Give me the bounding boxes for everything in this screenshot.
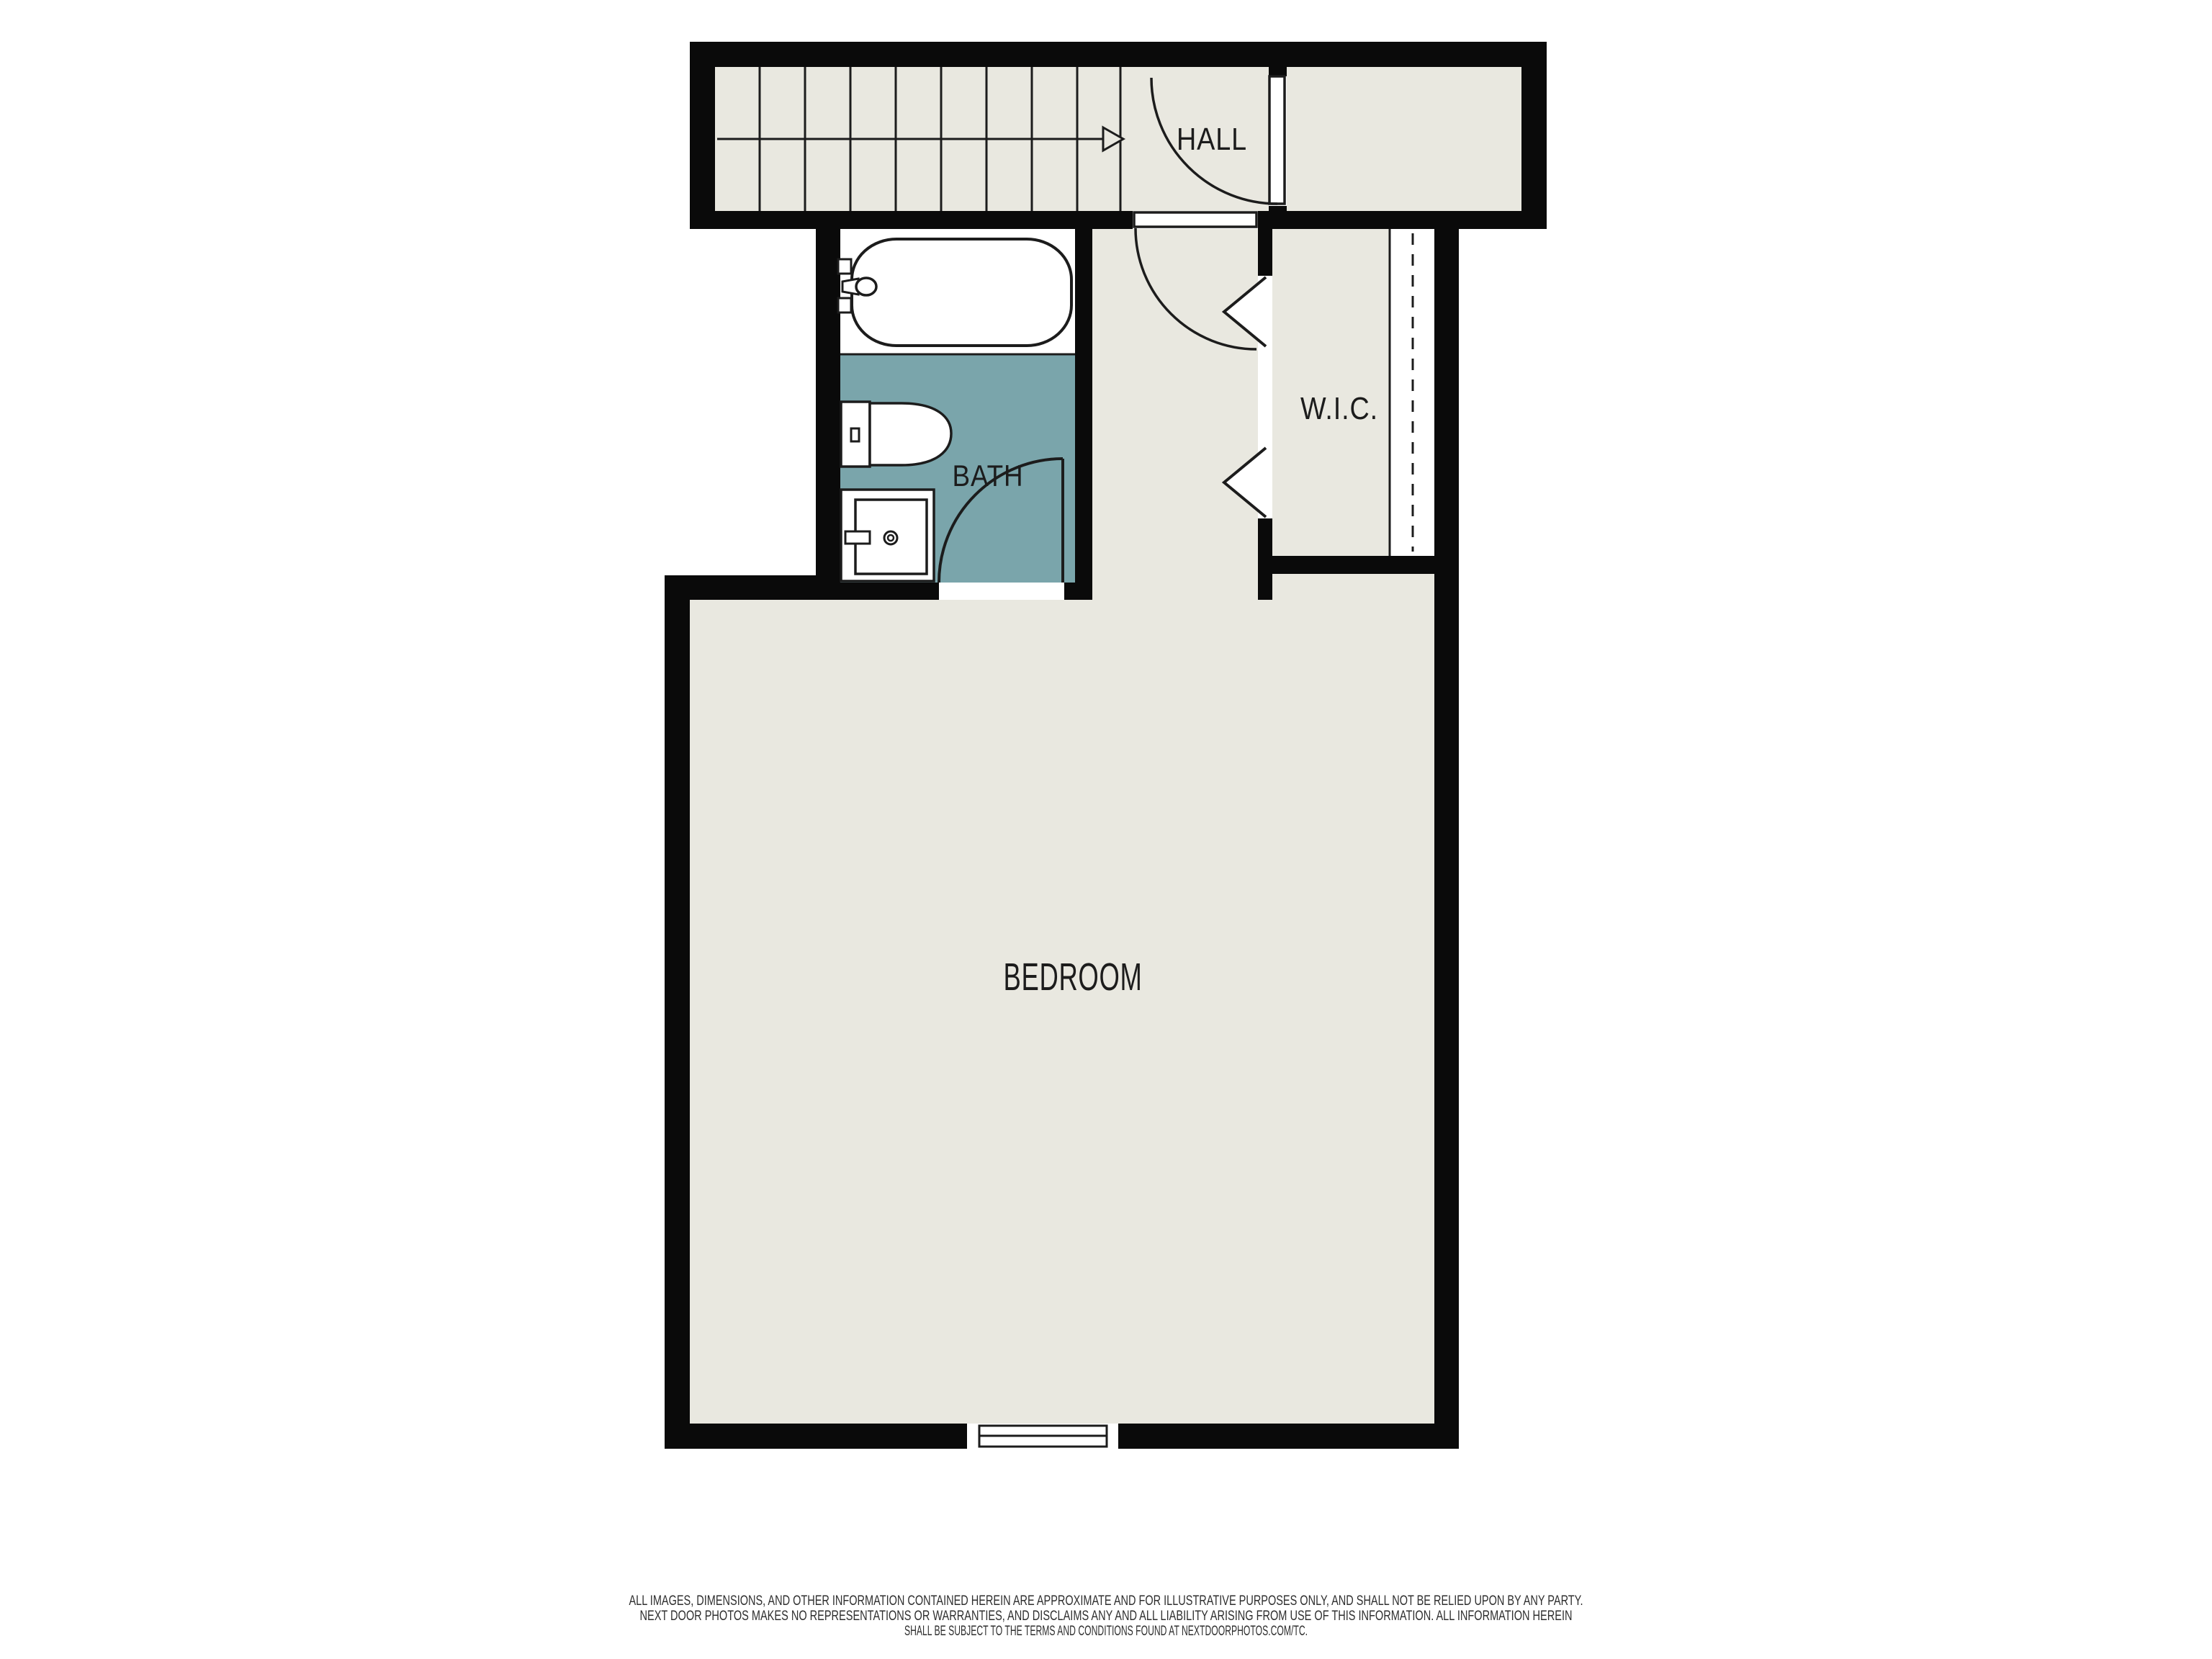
disclaimer: ALL IMAGES, DIMENSIONS, AND OTHER INFORM…: [629, 1593, 1583, 1639]
bath-label: BATH: [953, 459, 1024, 493]
wall-bedroom-left: [665, 575, 690, 1449]
tub-spout-knob: [856, 278, 876, 295]
disclaimer-line-2: NEXT DOOR PHOTOS MAKES NO REPRESENTATION…: [640, 1609, 1573, 1624]
bathtub: [852, 239, 1071, 346]
wall-right: [1434, 229, 1459, 1449]
disclaimer-line-3: SHALL BE SUBJECT TO THE TERMS AND CONDIT…: [904, 1624, 1308, 1639]
hall-label: HALL: [1177, 122, 1247, 157]
tub-handle-bottom: [838, 298, 851, 313]
toilet-bowl: [870, 403, 951, 465]
corridor-door-leaf: [1134, 212, 1256, 227]
sink-vanity: [841, 490, 934, 581]
sink-drain-inner: [888, 535, 894, 541]
tub-handle-top: [838, 259, 851, 274]
hall-door-leaf: [1269, 76, 1285, 204]
floor-corridor: [1092, 229, 1258, 600]
sink-faucet: [845, 531, 870, 544]
floor-under-wic: [1272, 574, 1434, 600]
floor-plan-drawing: HALL BATH W.I.C. BEDROOM ALL IMAGES, DIM…: [0, 0, 2212, 1659]
disclaimer-line-1: ALL IMAGES, DIMENSIONS, AND OTHER INFORM…: [629, 1593, 1583, 1609]
bath-door-threshold: [939, 583, 1064, 600]
wall-wic-bottom: [1258, 556, 1459, 574]
wall-bedroom-top-left: [665, 575, 840, 600]
window-assembly: [967, 1424, 1118, 1449]
toilet-flush-button: [851, 428, 859, 441]
wic-label: W.I.C.: [1300, 391, 1378, 426]
bath-room: [838, 229, 1075, 600]
floor-bedroom: [690, 600, 1434, 1424]
floor-plan-page: HALL BATH W.I.C. BEDROOM ALL IMAGES, DIM…: [0, 0, 2212, 1659]
toilet: [841, 402, 951, 467]
bedroom-label: BEDROOM: [1004, 956, 1143, 999]
